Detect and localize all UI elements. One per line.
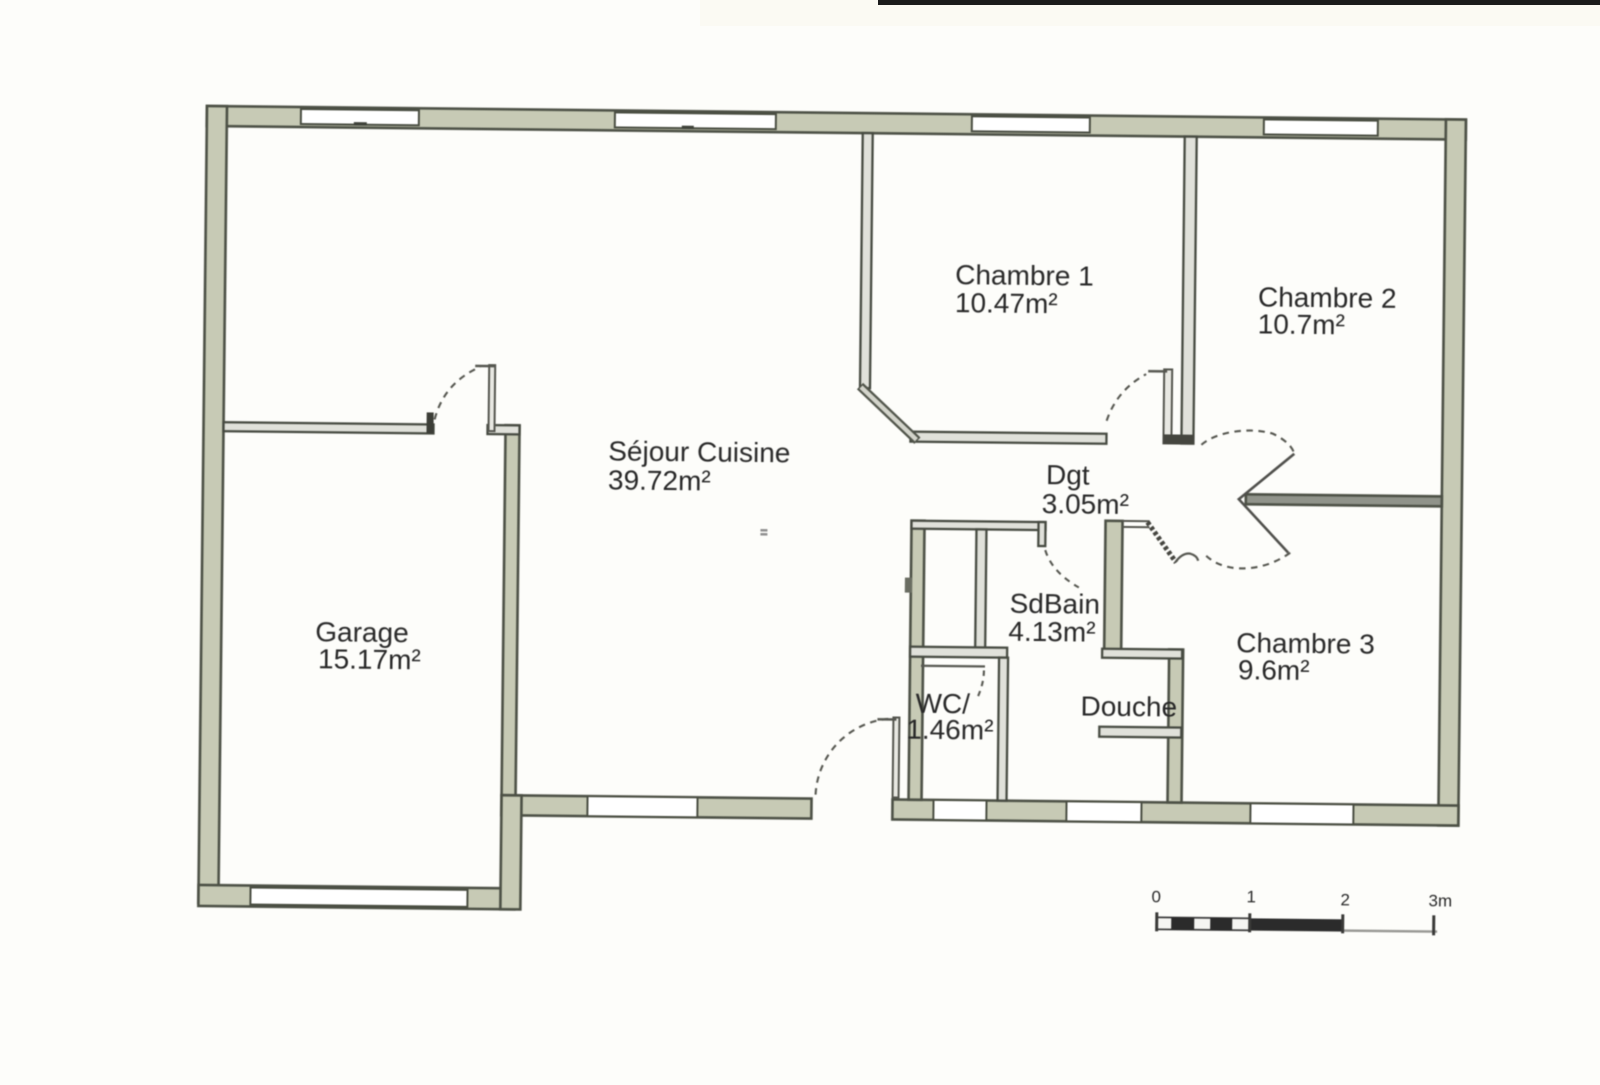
svg-text:15.17m²: 15.17m² (318, 643, 421, 675)
svg-text:10.7m²: 10.7m² (1258, 308, 1345, 340)
svg-text:3m: 3m (1428, 891, 1452, 910)
svg-text:Séjour Cuisine: Séjour Cuisine (608, 435, 790, 468)
svg-text:10.47m²: 10.47m² (955, 287, 1058, 319)
svg-text:4.13m²: 4.13m² (1008, 616, 1095, 648)
svg-text:Dgt: Dgt (1046, 459, 1090, 490)
svg-text:9.6m²: 9.6m² (1238, 654, 1310, 686)
svg-text:1: 1 (1246, 887, 1256, 906)
svg-text:2: 2 (1340, 890, 1350, 909)
svg-text:0: 0 (1151, 887, 1161, 906)
svg-text:1.46m²: 1.46m² (906, 714, 993, 746)
svg-text:3.05m²: 3.05m² (1042, 488, 1129, 520)
svg-text:39.72m²: 39.72m² (608, 464, 711, 496)
svg-text:Douche: Douche (1080, 690, 1177, 722)
